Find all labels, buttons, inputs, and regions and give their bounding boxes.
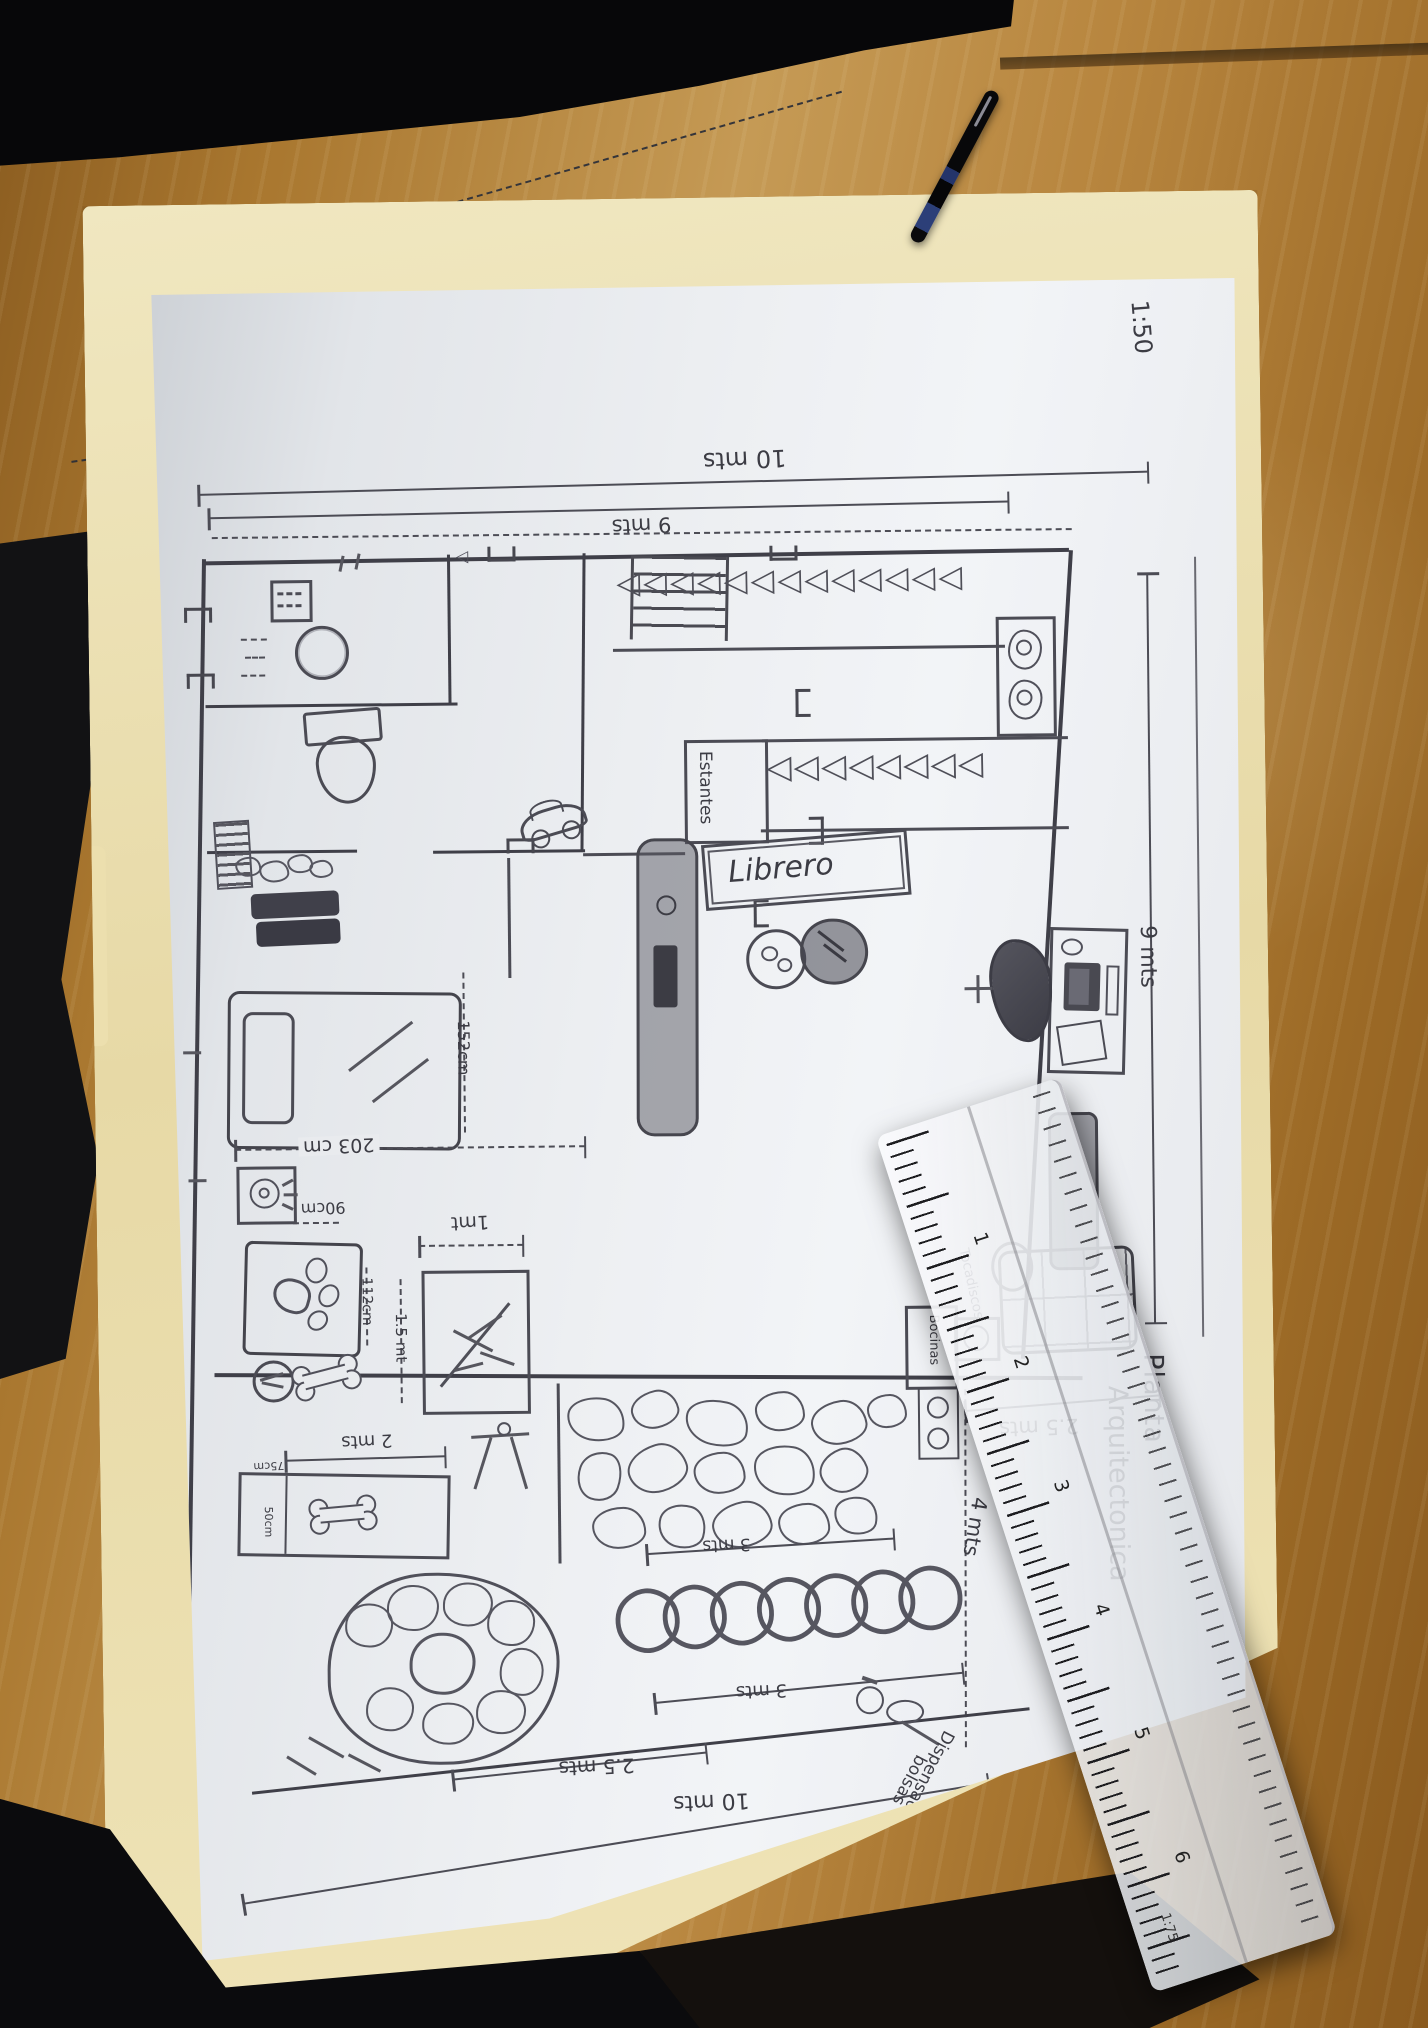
ruler-number: 4 — [1090, 1601, 1112, 1618]
fan-ray — [282, 1179, 294, 1187]
cabinet-plant-icon — [1008, 629, 1042, 669]
pillow — [242, 1012, 295, 1124]
fan-swirl-dot — [259, 1188, 270, 1199]
blanket-fold — [348, 1021, 413, 1072]
stone — [750, 1440, 819, 1499]
shelf-row1-icons: ◁◁◁◁◁◁◁◁◁◁◁◁◁ — [616, 562, 965, 600]
tree-bush — [327, 1572, 555, 1760]
bed — [227, 991, 462, 1151]
sink-counter-dash — [241, 639, 267, 641]
photo-scene: 10 mts 9 mts 9 mts 2.5 mts 4 mts 2.5 mts… — [0, 0, 1428, 2028]
door-mat — [251, 890, 346, 952]
sawhorse-leg — [510, 1437, 528, 1490]
sink-counter-dash — [241, 675, 265, 677]
paw-toe — [303, 1256, 330, 1286]
ball-line — [260, 1372, 284, 1381]
ruler-number: 2 — [1010, 1354, 1032, 1371]
dim-label-dog-bed: 112cm — [360, 1277, 375, 1325]
dim-label-planter-h: 1.5 mt — [393, 1313, 409, 1362]
wall-bath-v1 — [447, 555, 452, 705]
door-bracket — [184, 608, 212, 623]
dim-label-tunnel-lower: 3 mts — [735, 1680, 787, 1700]
shelf-row2-top-line — [762, 736, 1068, 742]
kennel-divider — [284, 1476, 287, 1554]
ruler-number: 5 — [1130, 1725, 1152, 1742]
dim-label-kennel-w: 2 mts — [341, 1430, 393, 1450]
stone — [693, 1452, 745, 1495]
dim-label-bed-length: 152cm — [455, 1020, 472, 1075]
stone — [571, 1445, 629, 1507]
estantes-box: Estantes — [684, 739, 769, 844]
console-knob — [656, 895, 676, 915]
door-bracket — [769, 545, 797, 560]
stone — [755, 1391, 805, 1432]
dim-line-kennel-w — [285, 1455, 445, 1461]
chair-base-star — [976, 975, 979, 1003]
stone — [592, 1507, 646, 1550]
wall-bath-mid — [206, 703, 458, 709]
bathroom-window — [270, 580, 312, 622]
dim-line-tunnel-lower — [654, 1672, 963, 1704]
stone — [235, 857, 261, 877]
stone — [681, 1393, 754, 1453]
paw-toe — [314, 1280, 344, 1311]
dim-label-top-outer: 10 mts — [702, 446, 786, 474]
ball-toy — [252, 1360, 294, 1402]
mat-half — [251, 890, 340, 919]
stone — [778, 1503, 830, 1546]
dim-label-bottom-outer: 10 mts — [673, 1788, 750, 1813]
wall-hatch — [338, 556, 344, 572]
fan-box — [236, 1166, 297, 1225]
tv-console — [636, 838, 699, 1136]
fan-ray — [282, 1203, 294, 1210]
kennel-bone — [310, 1496, 375, 1533]
dim-label-right-height: 9 mts — [1136, 925, 1159, 988]
notebook-icon — [1056, 1020, 1107, 1066]
door-bracket — [487, 546, 515, 561]
sawhorse-leg — [473, 1437, 492, 1489]
dim-label-bottom-short: 2.5 mts — [558, 1755, 635, 1778]
pouf-seat — [746, 929, 807, 990]
ruler-number: 6 — [1170, 1848, 1192, 1865]
window-hatch — [277, 604, 301, 607]
ground-hatch — [286, 1756, 316, 1776]
branch-twig — [480, 1351, 515, 1365]
mouse-icon — [1061, 938, 1083, 956]
planter-box — [421, 1270, 531, 1415]
tunnel-rings: ○○○○○○○ — [607, 1548, 944, 1658]
toilet-bowl — [314, 734, 378, 806]
patio-right-dashed — [964, 1389, 967, 1747]
toy-car — [514, 791, 590, 852]
stone — [259, 860, 289, 882]
pouf-dot — [761, 946, 778, 961]
tree-center — [409, 1632, 476, 1695]
shelf-row2-icons: ◁◁◁◁◁◁◁◁ — [766, 746, 986, 783]
dog-bed — [242, 1241, 363, 1358]
stone — [622, 1437, 693, 1500]
paper-edge-line — [1194, 557, 1204, 1337]
fan-dim-dash — [293, 1222, 339, 1224]
wall-hall — [507, 858, 511, 978]
sink-counter-dash — [245, 657, 265, 659]
shelf-row2-bottom-line — [761, 826, 1069, 832]
door-bracket — [187, 674, 215, 689]
ruler-number: 1 — [969, 1230, 991, 1247]
stone — [813, 1441, 873, 1499]
stone — [309, 860, 333, 878]
blanket-fold — [372, 1058, 429, 1103]
stone — [808, 1397, 870, 1449]
dim-label-kennel-d: 75cm — [253, 1460, 284, 1472]
dim-label-planter-w: 1mt — [451, 1212, 490, 1233]
shelf-cabinet — [996, 616, 1057, 737]
ruler-number: 3 — [1050, 1478, 1072, 1495]
firewood-pile — [213, 820, 253, 890]
window-hatch — [277, 592, 301, 595]
pouf-seat-dark — [800, 918, 869, 985]
librero-label: Librero — [727, 850, 835, 888]
estantes-label: Estantes — [696, 751, 714, 825]
dim-label-tunnel-upper: 3 mts — [702, 1535, 751, 1554]
dim-label-fan: 90cm — [300, 1199, 345, 1217]
dim-label-kennel-h: 50cm — [263, 1506, 274, 1537]
dim-line-top-inner — [209, 501, 1009, 520]
shelf-row1-line — [613, 645, 1005, 652]
keyboard-icon — [1105, 965, 1119, 1015]
pouf-dot — [777, 958, 792, 972]
monitor-icon — [1063, 962, 1100, 1011]
sawhorse — [471, 1430, 532, 1491]
mat-half — [256, 918, 341, 947]
stone — [627, 1386, 682, 1434]
dial-icon — [927, 1396, 949, 1418]
wall-tick — [183, 1051, 201, 1054]
door-arrow-icon: ◁ — [456, 548, 468, 564]
sawhorse-hook — [497, 1422, 511, 1436]
paw-pad — [269, 1274, 315, 1317]
stone — [867, 1394, 907, 1428]
dim-line-planter-w — [419, 1244, 523, 1247]
faucet-icon — [856, 1686, 884, 1714]
tv-icon — [653, 945, 677, 1007]
monitor-screen — [1069, 968, 1090, 1004]
ball-line — [262, 1381, 284, 1388]
fan-ray — [284, 1193, 298, 1196]
sink — [295, 626, 350, 681]
paw-toe — [303, 1306, 332, 1335]
stone — [831, 1492, 882, 1538]
bone-toy — [292, 1355, 360, 1402]
wall-tick — [188, 1179, 206, 1182]
dial-icon — [927, 1427, 949, 1449]
dim-line-top-outer — [198, 471, 1148, 496]
dim-label-bed-width: 203 cm — [298, 1134, 380, 1157]
computer-desk — [1047, 927, 1129, 1075]
dial-strip — [918, 1387, 960, 1459]
stone — [564, 1394, 627, 1445]
door-bracket — [795, 689, 810, 717]
plan-scale-note: 1:50 — [1127, 299, 1155, 355]
cabinet-plant-icon — [1008, 679, 1042, 719]
